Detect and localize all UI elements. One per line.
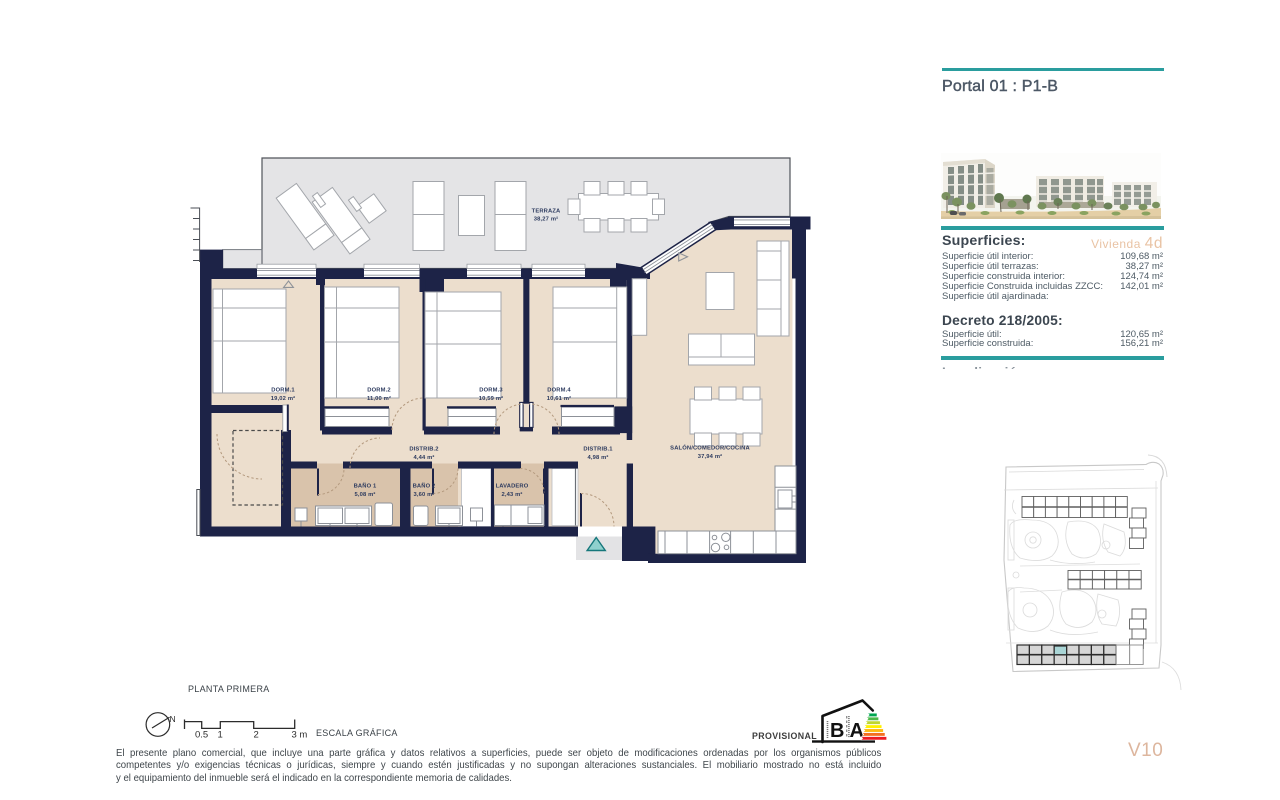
svg-text:DORM.2: DORM.2 <box>367 388 390 394</box>
svg-text:5,08 m²: 5,08 m² <box>354 491 375 498</box>
svg-text:38,27 m²: 38,27 m² <box>534 216 558 223</box>
svg-text:DORM.1: DORM.1 <box>271 388 295 394</box>
svg-text:B: B <box>830 720 844 742</box>
svg-text:N: N <box>170 714 176 724</box>
svg-text:2,43 m²: 2,43 m² <box>501 491 522 498</box>
svg-text:3,60 m²: 3,60 m² <box>413 491 434 498</box>
svg-text:11,00 m²: 11,00 m² <box>367 395 391 402</box>
svg-text:19,02 m²: 19,02 m² <box>271 395 295 402</box>
svg-text:0.5: 0.5 <box>195 730 208 741</box>
svg-text:LAVADERO: LAVADERO <box>496 484 529 490</box>
svg-text:37,94 m²: 37,94 m² <box>698 453 722 460</box>
svg-text:10,59 m²: 10,59 m² <box>479 395 503 402</box>
svg-text:4,98 m²: 4,98 m² <box>587 454 608 461</box>
svg-text:3 m: 3 m <box>292 730 308 741</box>
svg-text:BAÑO 1: BAÑO 1 <box>354 483 377 490</box>
svg-text:1: 1 <box>218 730 223 741</box>
svg-text:DORM.3: DORM.3 <box>479 388 503 394</box>
svg-text:TERRAZA: TERRAZA <box>532 209 561 215</box>
svg-text:A: A <box>850 720 864 742</box>
svg-text:DISTRIB.1: DISTRIB.1 <box>583 447 613 453</box>
svg-text:2: 2 <box>254 730 259 741</box>
svg-text:BAÑO 2: BAÑO 2 <box>413 483 436 490</box>
svg-text:DISTRIB.2: DISTRIB.2 <box>409 447 438 453</box>
svg-text:4,44 m²: 4,44 m² <box>413 454 434 461</box>
svg-text:DORM.4: DORM.4 <box>547 388 571 394</box>
svg-text:10,61 m²: 10,61 m² <box>547 395 571 402</box>
svg-text:SALÓN/COMEDOR/COCINA: SALÓN/COMEDOR/COCINA <box>670 444 750 452</box>
